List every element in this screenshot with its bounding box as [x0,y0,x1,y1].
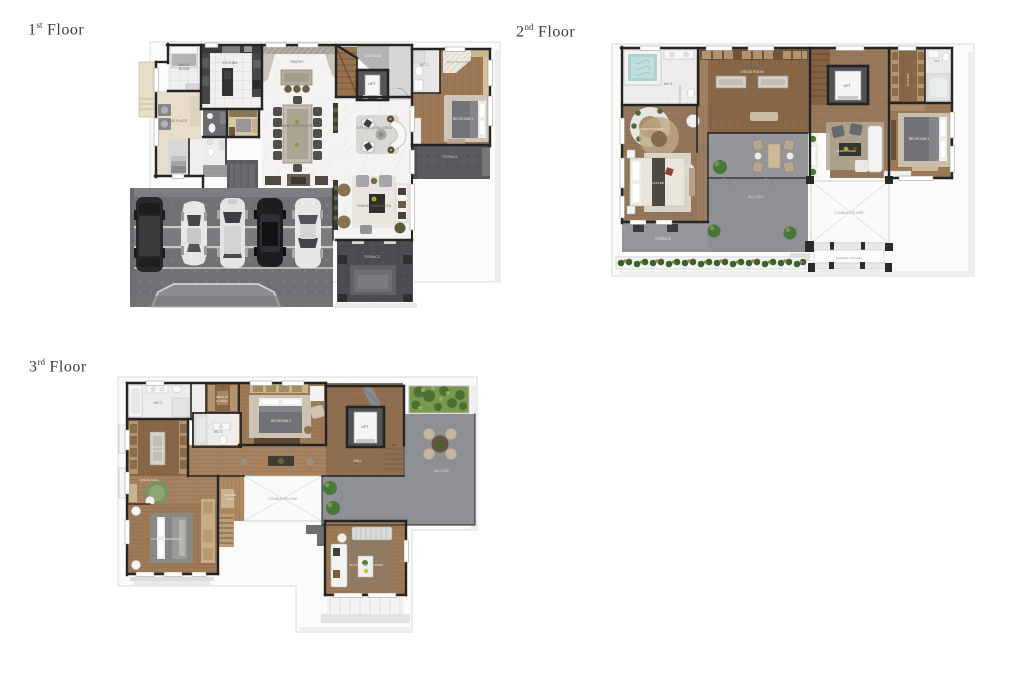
svg-text:WALK-IN CLOSET: WALK-IN CLOSET [446,60,471,64]
svg-text:DOUBLE VOLUME: DOUBLE VOLUME [268,497,298,501]
svg-text:TERRACE: TERRACE [442,155,459,159]
svg-text:TERRACE: TERRACE [655,237,672,241]
svg-text:DRESS ROOM: DRESS ROOM [740,70,763,74]
svg-text:AREA: AREA [226,497,234,501]
svg-text:WC: WC [935,59,941,63]
svg-text:LIFT: LIFT [369,82,376,86]
svg-text:BEDROOM 2: BEDROOM 2 [271,419,291,423]
svg-text:MULTIPURPOSE ROOM: MULTIPURPOSE ROOM [349,563,383,567]
svg-text:BALCONY: BALCONY [434,469,451,473]
svg-text:BEDROOM 3: BEDROOM 3 [909,137,929,141]
svg-text:KITCHEN: KITCHEN [223,61,238,65]
svg-text:HALL: HALL [354,459,363,463]
svg-text:LIFT: LIFT [844,84,851,88]
svg-text:ROOM: ROOM [179,67,190,71]
svg-text:WC 4: WC 4 [214,430,223,434]
svg-text:BALCONY: BALCONY [748,195,765,199]
svg-text:TERRACE: TERRACE [364,255,381,259]
svg-text:MASTER BEDROOM: MASTER BEDROOM [151,537,181,541]
svg-text:FAMILY AREA: FAMILY AREA [836,149,857,153]
svg-text:WC 2: WC 2 [420,63,429,67]
svg-text:WALK-IN: WALK-IN [906,74,910,86]
svg-text:GRAND MASTER BEDROOM: GRAND MASTER BEDROOM [639,181,681,185]
svg-text:DOUBLE VOLUME: DOUBLE VOLUME [836,256,862,260]
svg-text:BEDROOM 1: BEDROOM 1 [453,117,473,121]
svg-text:DRESS AREA: DRESS AREA [139,478,158,482]
svg-text:CLOSET: CLOSET [216,399,228,403]
svg-text:CLOSET: CLOSET [152,449,164,453]
svg-text:DOUBLE VOLUME: DOUBLE VOLUME [834,211,864,215]
svg-text:GRAND LIVING AREA: GRAND LIVING AREA [357,204,392,208]
svg-text:STORAGE: STORAGE [365,54,382,58]
svg-text:WC 3: WC 3 [154,401,163,405]
svg-text:LIFT: LIFT [362,425,369,429]
svg-text:MAID PLACE: MAID PLACE [167,119,188,123]
svg-text:PANTRY: PANTRY [290,60,304,64]
svg-text:ENTERTAINMENT: ENTERTAINMENT [638,127,663,131]
svg-text:SITTING LIVING AREA: SITTING LIVING AREA [356,126,392,130]
svg-text:WC 5: WC 5 [664,82,673,86]
svg-text:GRAND DINING AREA: GRAND DINING AREA [279,124,315,128]
svg-text:DN: DN [392,443,396,447]
